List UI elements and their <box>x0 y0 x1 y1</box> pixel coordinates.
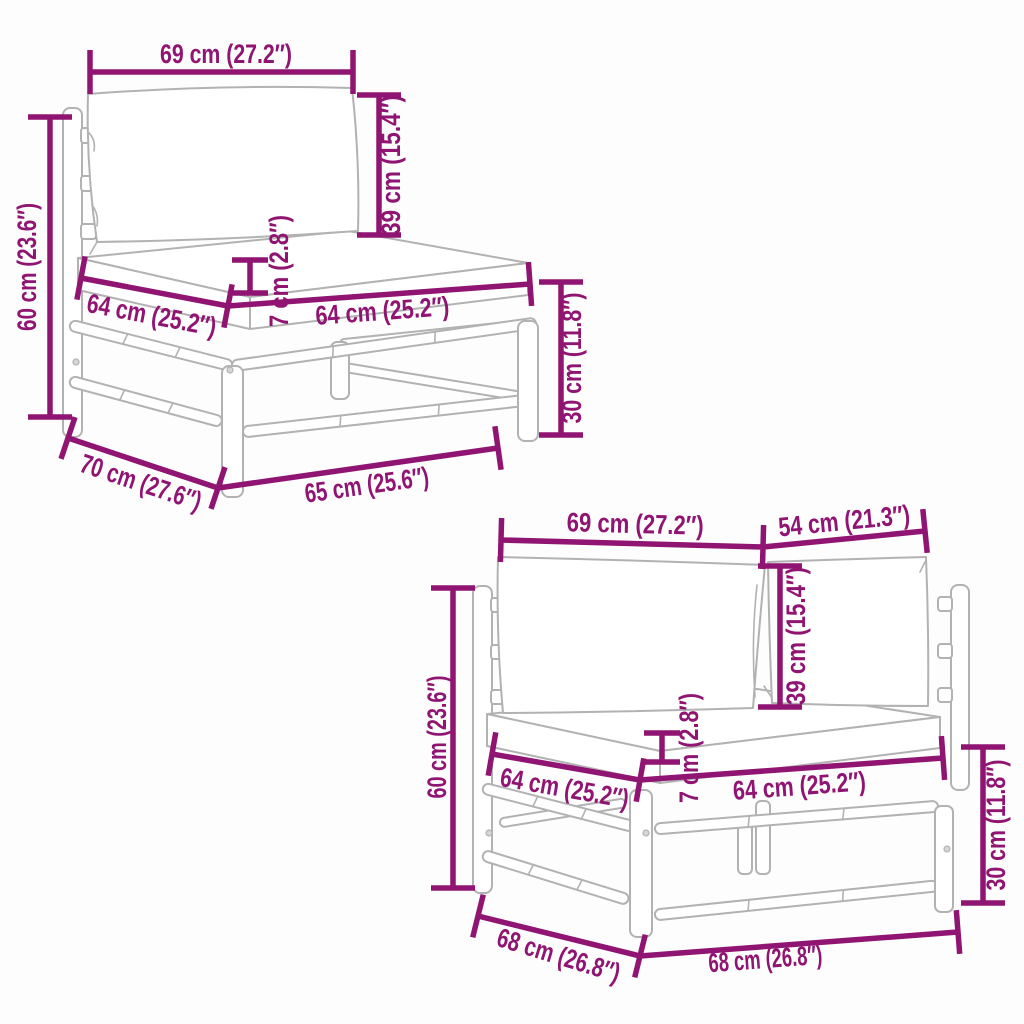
bamboo-rail <box>69 376 223 428</box>
dimension-label: 70 cm (27.6″) <box>76 448 205 516</box>
bamboo-rail <box>655 801 939 835</box>
middle-sofa-section-sketch <box>63 87 538 497</box>
diagram-canvas: 69 cm (27.2″) 39 cm (15.4″) 60 cm (23.6″… <box>0 0 1024 1024</box>
dim-side-back-cushion-width: 54 cm (21.3″) <box>763 500 927 553</box>
dimension-label: 30 cm (11.8″) <box>557 293 587 424</box>
dimension-label: 7 cm (2.8″) <box>264 215 294 327</box>
dimension-label: 7 cm (2.8″) <box>674 693 704 803</box>
middle-leg <box>756 801 770 874</box>
right-leg <box>935 806 953 912</box>
product-dimension-diagram: 69 cm (27.2″) 39 cm (15.4″) 60 cm (23.6″… <box>0 0 1024 1024</box>
dim-total-height: 60 cm (23.6″) <box>422 588 475 888</box>
bamboo-rail <box>481 850 629 905</box>
dimension-label: 39 cm (15.4″) <box>376 95 406 235</box>
corner-sofa-section-sketch <box>473 557 969 937</box>
front-leg <box>630 790 652 937</box>
right-leg <box>518 321 538 441</box>
screw <box>227 367 233 373</box>
bamboo-frame <box>481 783 953 937</box>
dimension-label: 68 cm (26.8″) <box>494 922 624 988</box>
screw <box>643 830 649 836</box>
dim-back-cushion-height: 39 cm (15.4″) <box>357 95 406 235</box>
dimension-label: 68 cm (26.8″) <box>707 940 823 978</box>
dim-bottom-width: 68 cm (26.8″) <box>640 910 960 978</box>
post-rung <box>81 224 96 239</box>
dim-bottom-width: 65 cm (25.6″) <box>218 426 501 509</box>
dimension-label: 39 cm (15.4″) <box>781 567 811 705</box>
front-leg <box>222 366 243 497</box>
bamboo-rail <box>654 880 938 920</box>
dimension-label: 60 cm (23.6″) <box>12 203 42 331</box>
dimension-label: 60 cm (23.6″) <box>422 676 452 799</box>
post-rung <box>938 688 952 702</box>
dimension-label: 69 cm (27.2″) <box>160 39 292 69</box>
back-cushion-left <box>498 557 765 713</box>
dim-back-cushion-width: 69 cm (27.2″) <box>90 39 353 94</box>
dimension-label: 69 cm (27.2″) <box>566 507 704 541</box>
back-post-right <box>951 585 969 790</box>
screw <box>73 359 79 365</box>
middle-leg <box>738 824 752 874</box>
back-cushion <box>88 87 359 242</box>
post-rung <box>938 644 952 658</box>
dim-frame-height: 30 cm (11.8″) <box>539 282 587 435</box>
screw <box>944 846 950 852</box>
dim-depth: 70 cm (27.6″) <box>61 417 225 516</box>
dim-back-cushion-height: 39 cm (15.4″) <box>758 566 811 707</box>
post-rung <box>938 597 952 611</box>
screw <box>486 830 492 836</box>
dim-depth: 68 cm (26.8″) <box>473 895 646 989</box>
dimension-label: 30 cm (11.8″) <box>981 760 1011 891</box>
